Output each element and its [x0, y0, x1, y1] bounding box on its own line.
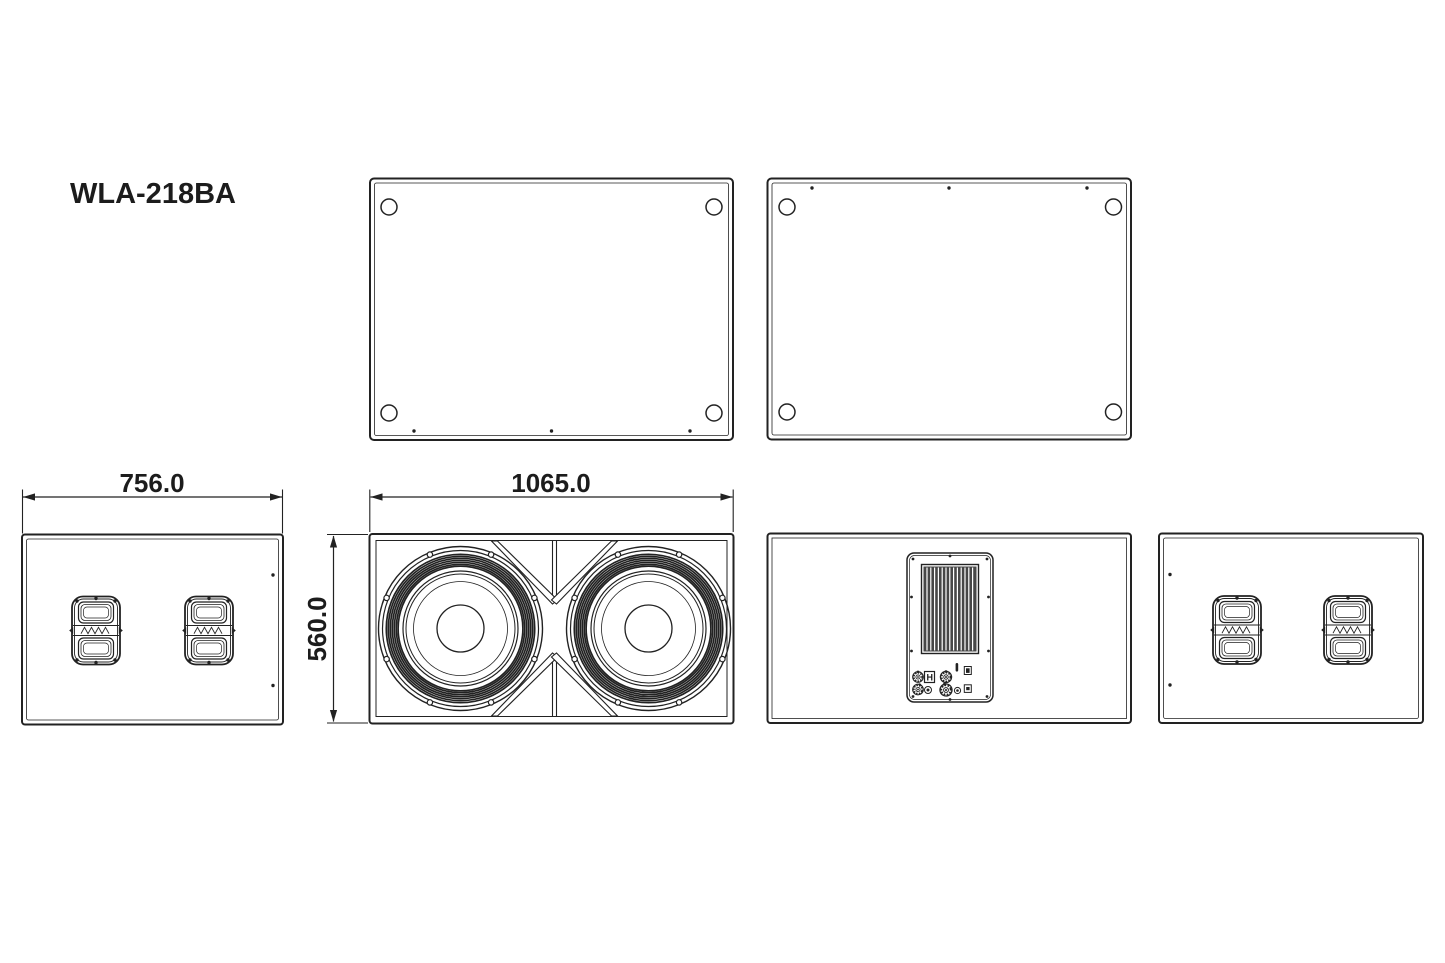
woofer-right [567, 547, 731, 711]
handle [1321, 596, 1375, 664]
led-indicator [956, 663, 959, 672]
dimension-depth-label: 756.0 [119, 470, 184, 496]
connector-field: H [911, 663, 971, 697]
stack-cup-hole [779, 199, 795, 215]
amplifier-panel: H [907, 553, 993, 702]
heatsink [922, 565, 979, 654]
stack-cup-hole [779, 404, 795, 420]
port-divider [553, 541, 557, 716]
line-art: H [0, 0, 1445, 963]
power-switch-label: H [926, 673, 933, 683]
dimension-width-label: 1065.0 [511, 470, 591, 496]
handle [1210, 596, 1264, 664]
stack-cup-hole [706, 405, 722, 421]
side-view-right [1159, 534, 1423, 724]
stack-cup-hole [1106, 404, 1122, 420]
speakon-connector [938, 681, 953, 697]
bottom-view [768, 179, 1132, 440]
top-view [370, 179, 733, 441]
front-view [370, 534, 734, 724]
speakon-connector [911, 682, 925, 697]
woofer-left [379, 547, 543, 711]
model-number: WLA-218BA [70, 180, 236, 209]
speakon-connector [940, 670, 951, 682]
stack-cup-hole [381, 199, 397, 215]
stack-cup-hole [706, 199, 722, 215]
dimension-height [327, 535, 368, 724]
handle [69, 597, 123, 665]
stack-cup-hole [381, 405, 397, 421]
side-view-left [22, 535, 283, 725]
rear-view: H [768, 534, 1132, 724]
dimension-height-label: 560.0 [304, 596, 330, 661]
handle [182, 597, 236, 665]
speakon-connector [913, 671, 924, 683]
technical-drawing-canvas: H WLA-218BA 756.0 1065.0 560.0 [0, 0, 1445, 963]
stack-cup-hole [1106, 199, 1122, 215]
